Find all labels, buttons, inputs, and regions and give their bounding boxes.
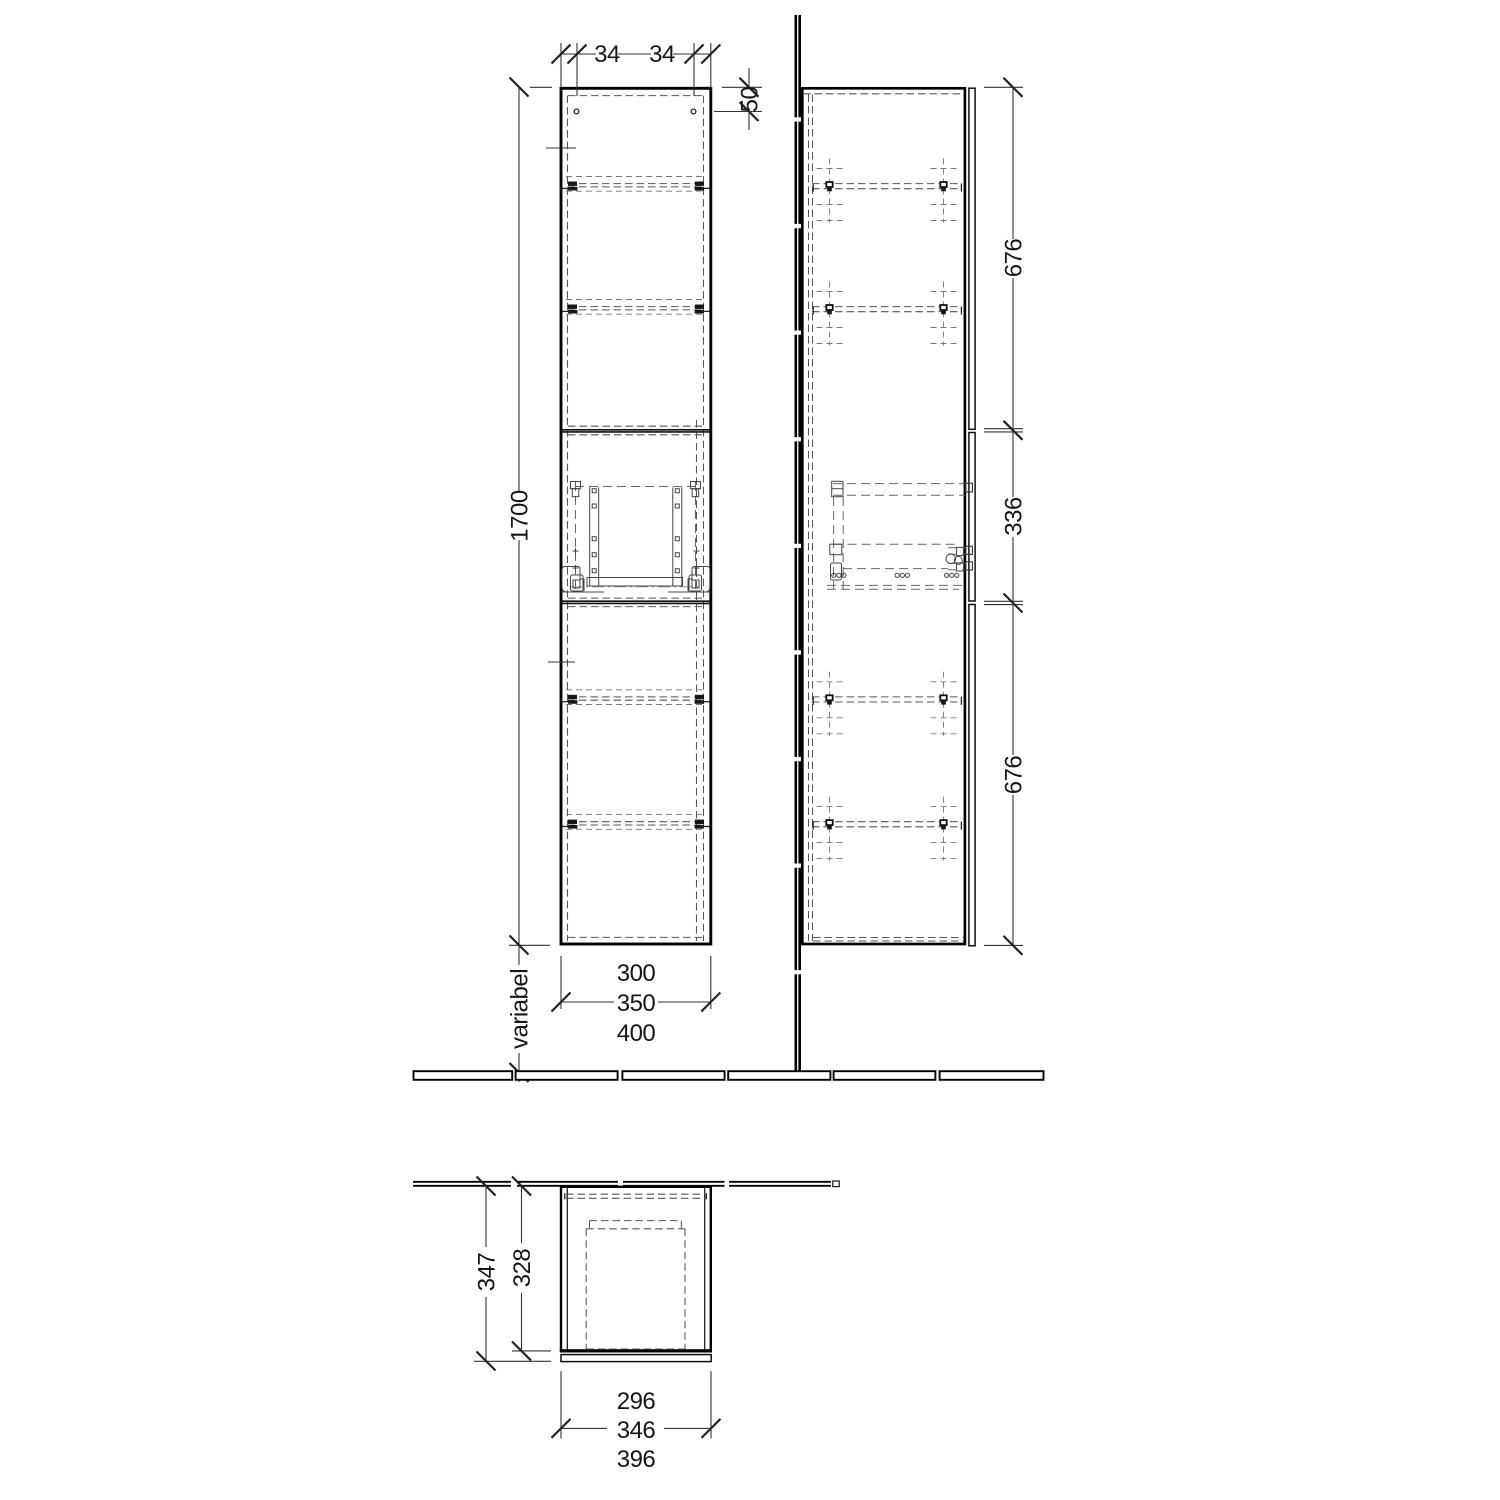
svg-text:34: 34	[649, 41, 675, 68]
svg-text:396: 396	[617, 1446, 656, 1473]
svg-text:346: 346	[617, 1417, 656, 1444]
svg-text:34: 34	[594, 41, 620, 68]
svg-text:350: 350	[617, 990, 656, 1017]
svg-text:400: 400	[617, 1020, 656, 1047]
svg-text:variabel: variabel	[507, 969, 534, 1049]
svg-text:328: 328	[509, 1249, 536, 1288]
svg-text:676: 676	[1001, 756, 1028, 795]
svg-text:300: 300	[617, 960, 656, 987]
svg-text:336: 336	[1001, 497, 1028, 536]
svg-text:50: 50	[737, 87, 764, 113]
svg-text:347: 347	[474, 1253, 501, 1292]
svg-text:676: 676	[1001, 239, 1028, 278]
svg-text:1700: 1700	[507, 490, 534, 542]
svg-text:296: 296	[617, 1388, 656, 1415]
